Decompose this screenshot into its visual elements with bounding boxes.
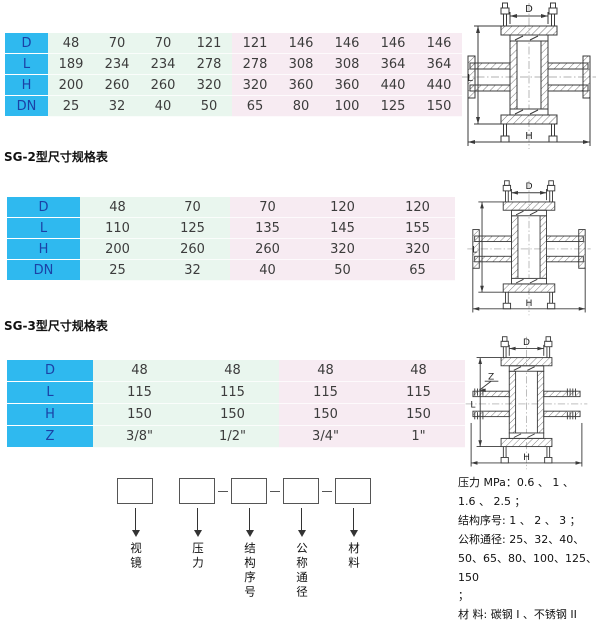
cell: 150 (279, 404, 372, 426)
cell: 360 (324, 75, 370, 96)
cell: 146 (278, 33, 324, 54)
cell: 278 (232, 54, 278, 75)
designation-label: 材料 (346, 542, 362, 571)
spec-table-sg1: D487070121121146146146146L18923423427827… (5, 33, 462, 117)
cell: 70 (94, 33, 140, 54)
designation-label: 结构序号 (242, 542, 258, 600)
cell: 50 (305, 260, 380, 281)
cell: 308 (324, 54, 370, 75)
cell: 200 (80, 239, 155, 260)
cell: 189 (48, 54, 94, 75)
cell: 25 (48, 96, 94, 117)
svg-text:D: D (525, 181, 532, 192)
row-header-H: H (7, 404, 93, 426)
cell: 1/2" (186, 426, 279, 448)
row-header-Z: Z (7, 426, 93, 448)
cell: 145 (305, 218, 380, 239)
svg-text:H: H (523, 453, 530, 463)
cell: 135 (230, 218, 305, 239)
row-header-H: H (5, 75, 48, 96)
designation-box (335, 478, 371, 504)
section-caption-sg2: SG-2型尺寸规格表 (4, 148, 108, 165)
cell: 150 (93, 404, 186, 426)
cell: 70 (230, 197, 305, 218)
cell: 48 (48, 33, 94, 54)
cell: 125 (370, 96, 416, 117)
svg-text:L: L (470, 401, 475, 411)
cell: 320 (186, 75, 232, 96)
cell: 40 (140, 96, 186, 117)
svg-text:H: H (525, 131, 533, 142)
cell: 146 (416, 33, 462, 54)
technical-drawing-sg1: DLH (460, 0, 598, 152)
cell: 440 (416, 75, 462, 96)
cell: 70 (155, 197, 230, 218)
technical-drawing-sg3: DLHZ (455, 334, 598, 472)
cell: 115 (279, 382, 372, 404)
cell: 320 (305, 239, 380, 260)
cell: 115 (372, 382, 465, 404)
cell: 40 (230, 260, 305, 281)
row-header-D: D (7, 360, 93, 382)
designation-box (179, 478, 215, 504)
cell: 110 (80, 218, 155, 239)
technical-drawing-sg2: DLH (460, 178, 598, 318)
cell: 364 (370, 54, 416, 75)
cell: 440 (370, 75, 416, 96)
cell: 200 (48, 75, 94, 96)
row-header-L: L (7, 218, 80, 239)
cell: 32 (94, 96, 140, 117)
down-arrow-icon (301, 508, 302, 530)
row-header-L: L (7, 382, 93, 404)
row-header-D: D (5, 33, 48, 54)
cell: 48 (93, 360, 186, 382)
designation-label: 压力 (190, 542, 206, 571)
designation-label: 视镜 (128, 542, 144, 571)
cell: 100 (324, 96, 370, 117)
cell: 80 (278, 96, 324, 117)
cell: 234 (140, 54, 186, 75)
svg-text:D: D (523, 338, 530, 348)
cell: 48 (80, 197, 155, 218)
svg-text:H: H (526, 298, 533, 309)
section-caption-sg3: SG-3型尺寸规格表 (4, 317, 108, 334)
cell: 150 (372, 404, 465, 426)
cell: 65 (380, 260, 455, 281)
cell: 48 (372, 360, 465, 382)
cell: 115 (186, 382, 279, 404)
cell: 121 (232, 33, 278, 54)
cell: 3/4" (279, 426, 372, 448)
designation-box (283, 478, 319, 504)
page: D487070121121146146146146L18923423427827… (0, 0, 600, 621)
down-arrow-icon (249, 508, 250, 530)
down-arrow-icon (197, 508, 198, 530)
cell: 260 (230, 239, 305, 260)
cell: 260 (155, 239, 230, 260)
cell: 364 (416, 54, 462, 75)
cell: 146 (370, 33, 416, 54)
cell: 150 (186, 404, 279, 426)
cell: 120 (380, 197, 455, 218)
cell: 360 (278, 75, 324, 96)
cell: 320 (380, 239, 455, 260)
cell: 3/8" (93, 426, 186, 448)
cell: 65 (232, 96, 278, 117)
cell: 1" (372, 426, 465, 448)
svg-text:L: L (467, 73, 473, 84)
row-header-H: H (7, 239, 80, 260)
row-header-D: D (7, 197, 80, 218)
cell: 120 (305, 197, 380, 218)
row-header-DN: DN (7, 260, 80, 281)
dash-connector (270, 491, 280, 492)
cell: 125 (155, 218, 230, 239)
model-designation-diagram: 视镜压力结构序号公称通径材料 (0, 470, 460, 621)
cell: 320 (232, 75, 278, 96)
cell: 115 (93, 382, 186, 404)
cell: 146 (324, 33, 370, 54)
designation-label: 公称通径 (294, 542, 310, 600)
dash-connector (218, 491, 228, 492)
spec-table-sg3: D48484848L115115115115H150150150150Z3/8"… (7, 360, 465, 448)
cell: 150 (416, 96, 462, 117)
cell: 48 (186, 360, 279, 382)
designation-box (117, 478, 153, 504)
cell: 70 (140, 33, 186, 54)
cell: 278 (186, 54, 232, 75)
cell: 308 (278, 54, 324, 75)
cell: 25 (80, 260, 155, 281)
svg-text:L: L (472, 245, 478, 256)
cell: 260 (94, 75, 140, 96)
cell: 234 (94, 54, 140, 75)
cell: 260 (140, 75, 186, 96)
parameter-notes: 压力 MPa：0.6 、 1 、 1.6 、 2.5 ； 结构序号: 1 、 2… (458, 474, 600, 621)
cell: 48 (279, 360, 372, 382)
svg-text:D: D (525, 4, 533, 15)
row-header-DN: DN (5, 96, 48, 117)
cell: 155 (380, 218, 455, 239)
cell: 32 (155, 260, 230, 281)
spec-table-sg2: D487070120120L110125135145155H2002602603… (7, 197, 455, 281)
row-header-L: L (5, 54, 48, 75)
down-arrow-icon (135, 508, 136, 530)
designation-box (231, 478, 267, 504)
dash-connector (322, 491, 332, 492)
cell: 50 (186, 96, 232, 117)
cell: 121 (186, 33, 232, 54)
down-arrow-icon (353, 508, 354, 530)
